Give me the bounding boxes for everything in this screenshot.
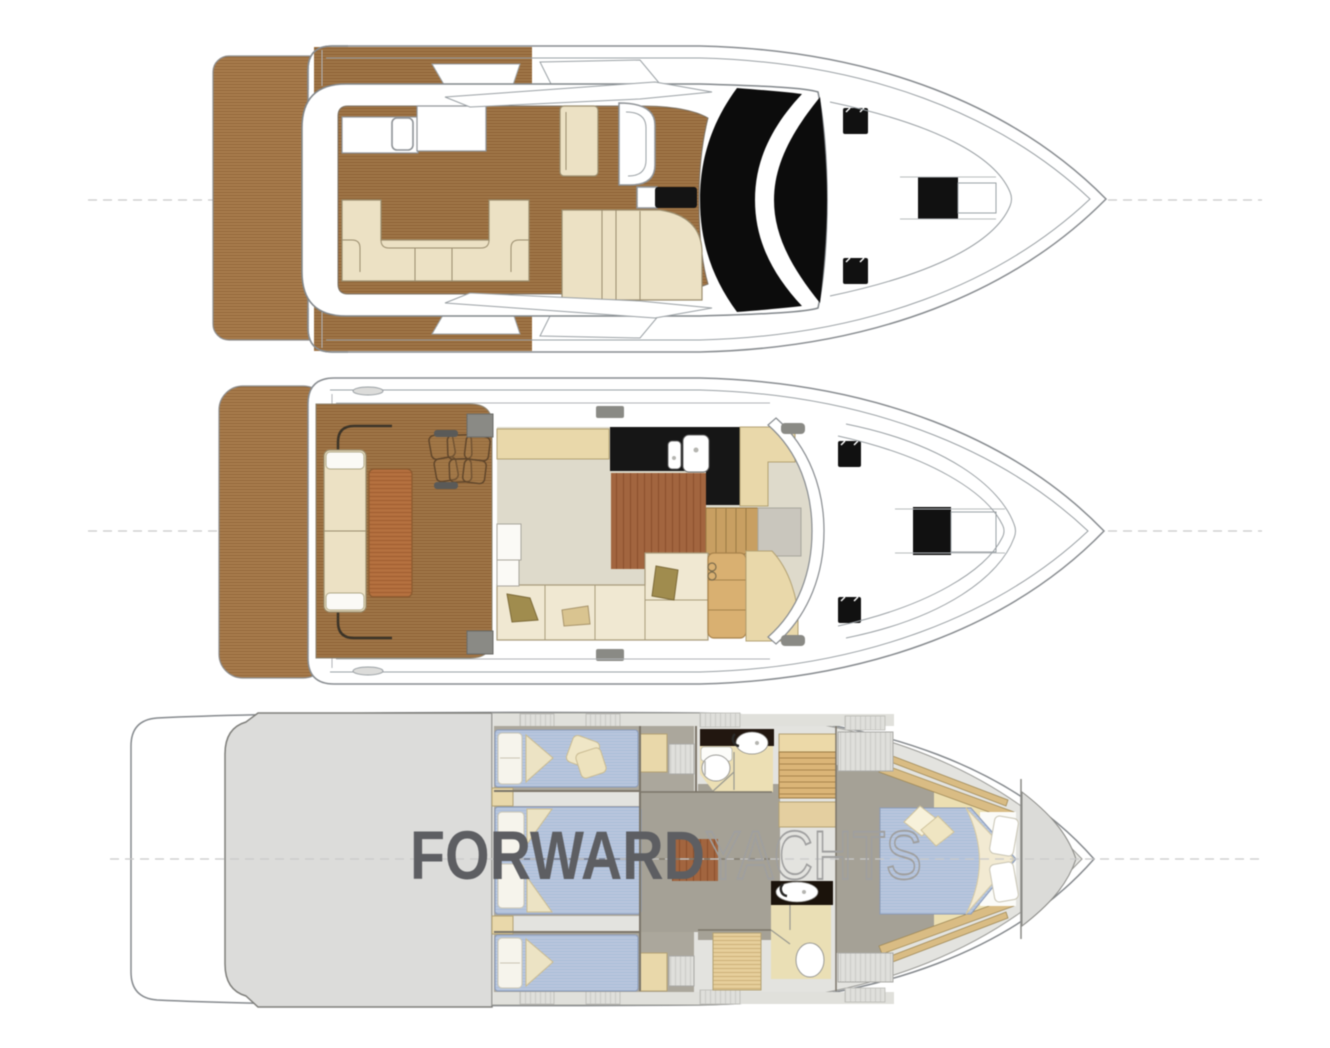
svg-text:FORWARD: FORWARD <box>410 817 705 894</box>
svg-text:YACHTS: YACHTS <box>705 817 922 894</box>
